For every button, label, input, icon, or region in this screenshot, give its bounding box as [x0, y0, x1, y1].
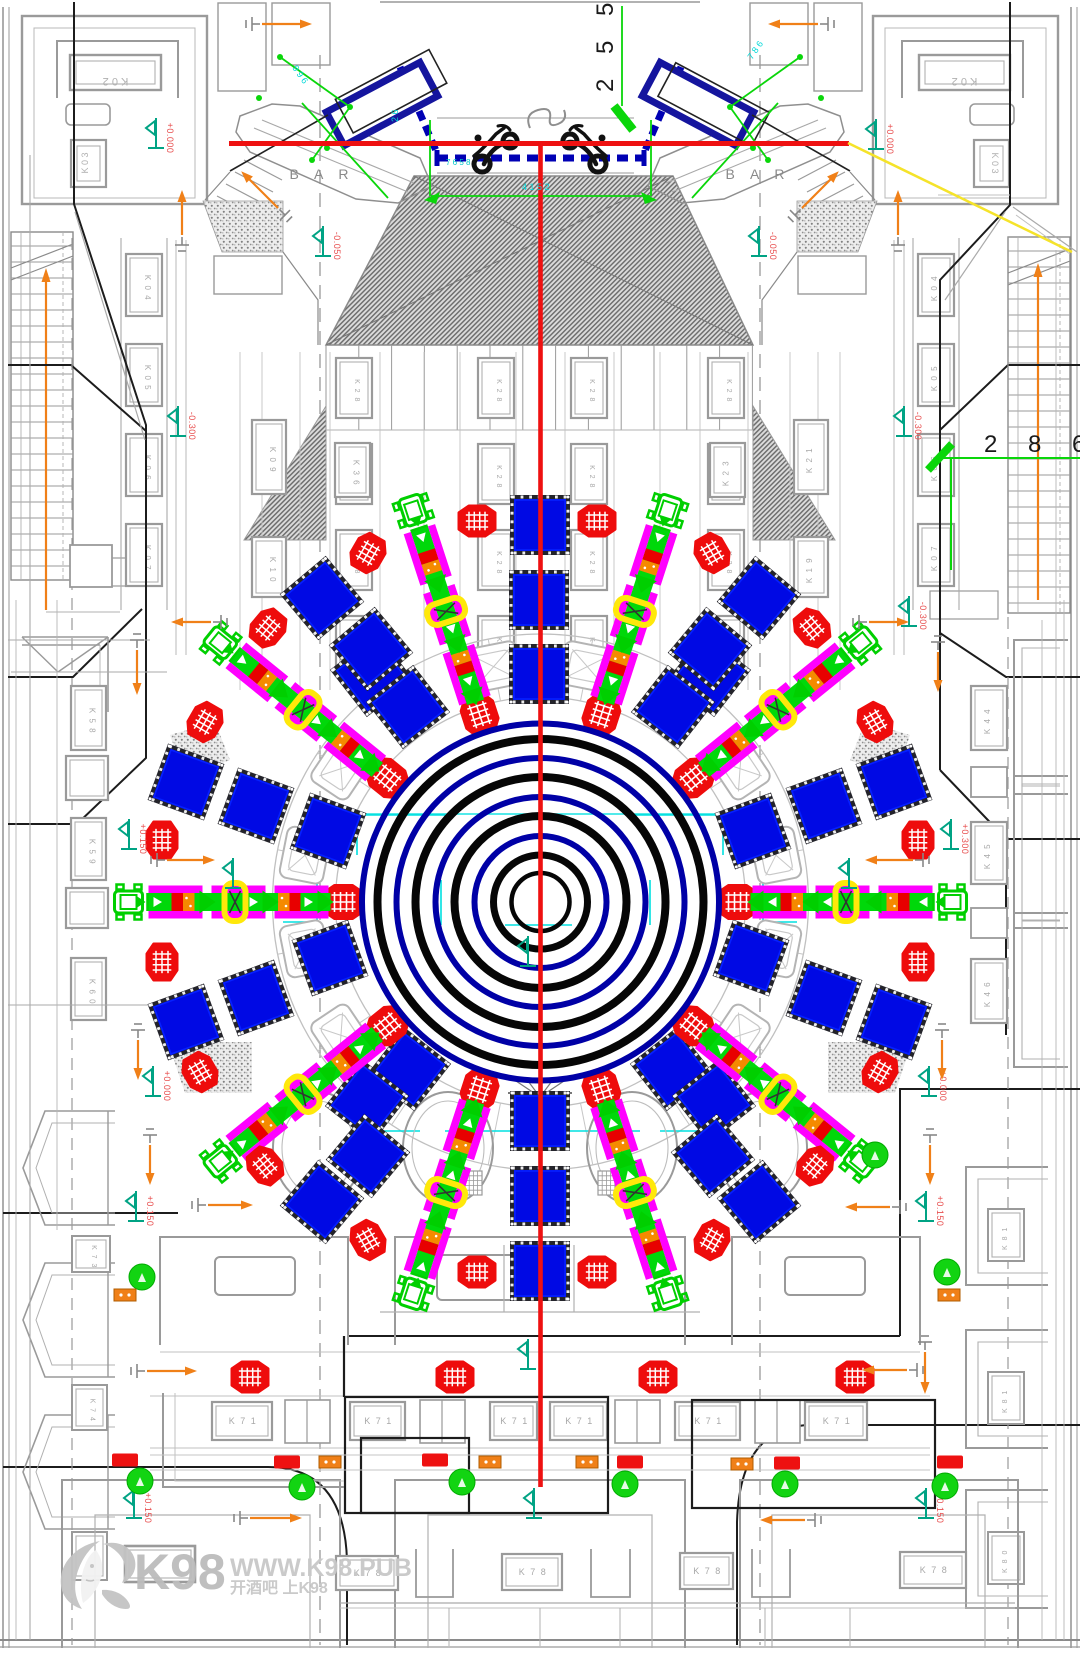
- svg-text:K 7 1: K 7 1: [229, 1416, 258, 1426]
- svg-text:开酒吧 上K98: 开酒吧 上K98: [230, 1579, 328, 1597]
- svg-text:K 2 8: K 2 8: [495, 551, 502, 575]
- svg-text:K 0 4: K 0 4: [930, 275, 939, 301]
- svg-text:K 2 1: K 2 1: [805, 447, 814, 473]
- svg-text:-0.050: -0.050: [332, 232, 342, 261]
- svg-text:K 0 7: K 0 7: [143, 545, 152, 571]
- svg-text:-0.300: -0.300: [918, 602, 928, 631]
- svg-text:-0.300: -0.300: [913, 412, 923, 441]
- svg-text:K 2 8: K 2 8: [588, 465, 595, 489]
- svg-text:K 1 0: K 1 0: [268, 557, 277, 583]
- svg-text:K 8 0: K 8 0: [1002, 1549, 1009, 1573]
- svg-text:4 1 5 2: 4 1 5 2: [522, 182, 550, 192]
- svg-text:K 8 1: K 8 1: [1002, 1389, 1009, 1413]
- svg-text:2 6: 2 6: [390, 109, 400, 122]
- svg-text:+0.000: +0.000: [165, 123, 175, 154]
- svg-text:K 7 8: K 7 8: [519, 1567, 548, 1577]
- svg-text:+0.150: +0.150: [935, 1196, 945, 1227]
- svg-text:K 0 5: K 0 5: [930, 365, 939, 391]
- svg-text:K 2 3: K 2 3: [722, 460, 731, 486]
- svg-text:K 2 8: K 2 8: [495, 465, 502, 489]
- svg-text:-0.050: -0.050: [768, 232, 778, 261]
- svg-text:K 4 4: K 4 4: [983, 708, 992, 734]
- svg-text:K 7 3: K 7 3: [90, 1245, 97, 1269]
- svg-text:B A R: B A R: [289, 166, 354, 182]
- svg-text:K 7 1: K 7 1: [694, 1416, 723, 1426]
- svg-text:K 2 8: K 2 8: [353, 379, 360, 403]
- svg-text:K 7 1: K 7 1: [364, 1416, 393, 1426]
- svg-text:K 5 9: K 5 9: [88, 839, 97, 865]
- svg-text:K 6 0: K 6 0: [88, 979, 97, 1005]
- svg-text:K 0 2: K 0 2: [103, 75, 129, 87]
- svg-text:2 5 5: 2 5 5: [592, 0, 619, 92]
- svg-text:K 3 6: K 3 6: [352, 460, 361, 486]
- svg-text:K 4 6: K 4 6: [983, 981, 992, 1007]
- svg-text:K 4 5: K 4 5: [983, 843, 992, 869]
- svg-text:+0.000: +0.000: [162, 1071, 172, 1102]
- svg-text:K 7 4: K 7 4: [89, 1399, 96, 1423]
- svg-text:2 8 6 0: 2 8 6 0: [984, 431, 1080, 458]
- svg-text:K 7 1: K 7 1: [500, 1416, 529, 1426]
- svg-text:K 5 8: K 5 8: [88, 708, 97, 734]
- svg-text:+0.000: +0.000: [885, 124, 895, 155]
- svg-text:K 7 8: K 7 8: [920, 1565, 949, 1575]
- svg-text:K 0 5: K 0 5: [143, 365, 152, 391]
- svg-text:-0.300: -0.300: [187, 412, 197, 441]
- svg-text:K 7 8: K 7 8: [693, 1566, 722, 1576]
- svg-text:K 2 8: K 2 8: [588, 379, 595, 403]
- svg-text:K 7 1: K 7 1: [565, 1416, 594, 1426]
- svg-text:B A R: B A R: [725, 166, 790, 182]
- svg-text:+0.150: +0.150: [143, 1493, 153, 1524]
- svg-text:K 8 1: K 8 1: [1002, 1226, 1009, 1250]
- svg-text:K 2 8: K 2 8: [725, 379, 732, 403]
- svg-text:K 0 3: K 0 3: [990, 152, 1000, 173]
- svg-text:K 1 9: K 1 9: [805, 557, 814, 583]
- svg-text:K 0 3: K 0 3: [80, 152, 90, 173]
- svg-text:+0.300: +0.300: [960, 824, 970, 855]
- svg-text:K 0 2: K 0 2: [952, 75, 978, 87]
- svg-text:+0.150: +0.150: [138, 824, 148, 855]
- svg-text:K 2 8: K 2 8: [495, 379, 502, 403]
- svg-text:K 0 9: K 0 9: [268, 447, 277, 473]
- svg-text:K 2 8: K 2 8: [588, 551, 595, 575]
- svg-text:7 6 5 8: 7 6 5 8: [446, 158, 471, 167]
- svg-text:K 0 4: K 0 4: [143, 275, 152, 301]
- svg-text:+0.150: +0.150: [145, 1196, 155, 1227]
- svg-text:K98: K98: [134, 1544, 226, 1600]
- svg-text:K 0 7: K 0 7: [930, 545, 939, 571]
- svg-text:K 0 6: K 0 6: [143, 455, 152, 481]
- svg-text:K 7 1: K 7 1: [823, 1416, 852, 1426]
- svg-text:WWW.K98.PUB: WWW.K98.PUB: [230, 1554, 412, 1582]
